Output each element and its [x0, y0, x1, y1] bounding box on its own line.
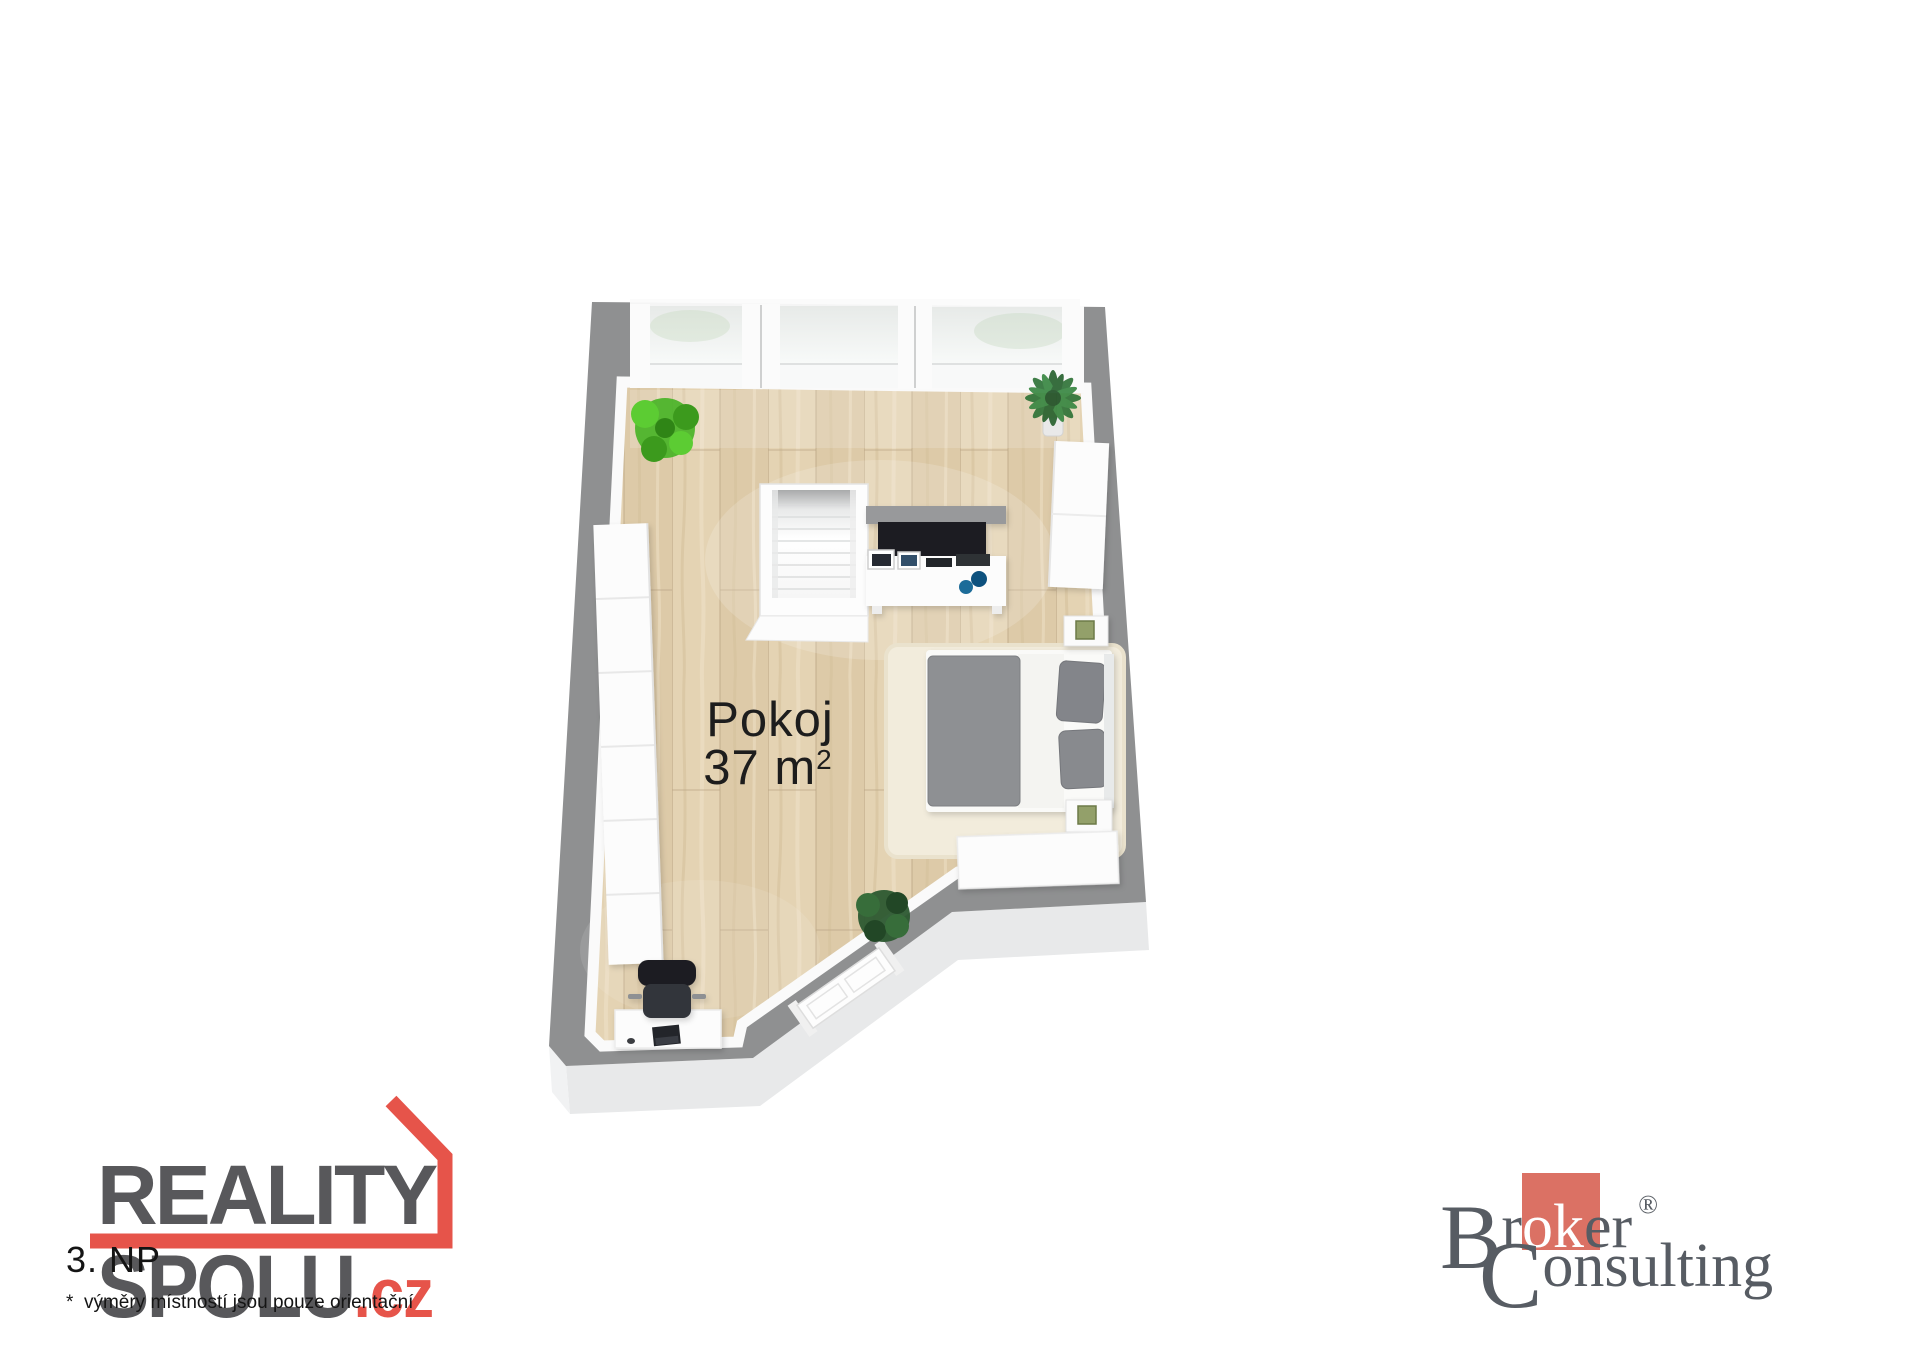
glass-plant-reflection	[650, 310, 730, 342]
tv-cabinet-leg	[872, 606, 882, 614]
window-wall	[630, 299, 1084, 390]
room-area-label: 37 m2	[703, 741, 833, 795]
nightstand-decor	[1076, 621, 1094, 639]
chair-seat	[643, 984, 691, 1018]
plant-foliage	[856, 893, 880, 917]
plant-foliage	[655, 418, 675, 438]
nightstand-top	[1064, 616, 1108, 646]
decor-bowl	[959, 580, 973, 594]
tv-wall-shelf	[866, 506, 1006, 524]
floorplan-page: { "plan": { "room": { "name": "Pokoj", "…	[0, 0, 1920, 1357]
bed-duvet	[928, 656, 1020, 806]
broker-logo-onsulting: onsulting	[1542, 1232, 1773, 1300]
wardrobe-right	[1049, 441, 1109, 589]
stair-side-shade	[772, 490, 778, 598]
stair-hole	[772, 490, 856, 598]
foot-dresser	[957, 831, 1119, 889]
staircase	[746, 484, 868, 642]
media-gadget	[926, 558, 952, 567]
tv-cabinet-leg	[992, 606, 1002, 614]
plant-foliage	[673, 404, 699, 430]
room-area-text: 37 m	[703, 741, 816, 795]
bed-pillow	[1056, 660, 1106, 723]
chair-armrest	[628, 994, 642, 999]
plant-foliage	[886, 892, 908, 914]
chair-back	[638, 960, 696, 986]
broker-logo-line2: Consulting	[1479, 1207, 1773, 1302]
glass-plant-reflection	[974, 313, 1066, 349]
plant-foliage	[864, 920, 886, 942]
reality-logo-word1: REALITY	[97, 1153, 435, 1237]
disclaimer: * výměry místností jsou pouze orientační	[66, 1293, 413, 1314]
nightstand-decor	[1078, 806, 1096, 824]
window-sill-2	[780, 364, 898, 388]
room-name-text: Pokoj	[706, 693, 834, 747]
mouse	[627, 1038, 635, 1044]
bed-sheet	[1018, 654, 1064, 808]
bed	[926, 650, 1114, 812]
plant-foliage	[669, 431, 693, 455]
plant-foliage	[885, 914, 909, 938]
tv-stand	[866, 506, 1006, 614]
floor-label: 3. NP	[66, 1240, 161, 1280]
window-frame-left	[630, 304, 650, 388]
window-frame-right	[1062, 306, 1084, 390]
bed-headboard	[1104, 654, 1114, 808]
bed-pillow	[1058, 729, 1107, 789]
chair-armrest	[692, 994, 706, 999]
palm-leaves	[1025, 370, 1081, 426]
room-area-sup: 2	[816, 744, 833, 775]
laptop	[652, 1025, 681, 1047]
bed-area	[886, 616, 1124, 889]
media-gadget	[956, 554, 990, 566]
decor-bowl	[971, 571, 987, 587]
nightstand-bottom	[1066, 800, 1112, 832]
plant-foliage	[641, 436, 667, 462]
window-glass-2	[780, 306, 898, 364]
picture-frame-photo	[901, 555, 917, 566]
picture-frame-photo	[872, 554, 891, 566]
broker-logo-c: C	[1479, 1222, 1542, 1328]
window-sill-1	[650, 364, 742, 388]
plant-foliage	[631, 400, 659, 428]
stair-landing-flare	[746, 616, 868, 642]
room-name-label: Pokoj	[706, 693, 834, 747]
stair-side-shade	[850, 490, 856, 598]
